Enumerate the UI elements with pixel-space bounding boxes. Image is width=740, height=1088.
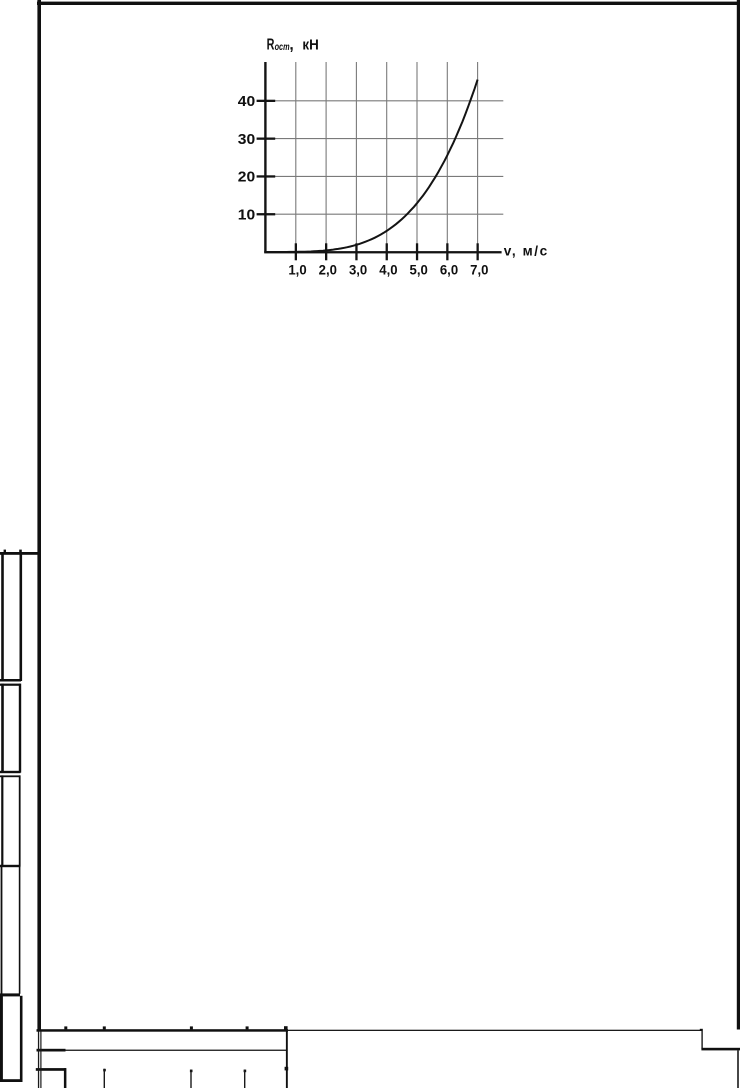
svg-text:v, м/с: v, м/с [504,243,549,258]
svg-text:1,0: 1,0 [288,263,306,278]
svg-text:5,0: 5,0 [410,263,428,278]
svg-text:7,0: 7,0 [470,263,488,278]
svg-text:10: 10 [238,207,255,224]
svg-text:ocm: ocm [275,42,290,53]
svg-text:кН: кН [302,36,318,53]
svg-text:3,0: 3,0 [349,263,367,278]
svg-text:R: R [267,36,275,53]
svg-text:30: 30 [238,131,255,148]
svg-text:,: , [289,36,293,53]
svg-text:6,0: 6,0 [440,263,458,278]
svg-text:20: 20 [238,169,255,186]
svg-text:4,0: 4,0 [379,263,397,278]
svg-text:40: 40 [238,93,255,110]
svg-text:2,0: 2,0 [319,263,337,278]
